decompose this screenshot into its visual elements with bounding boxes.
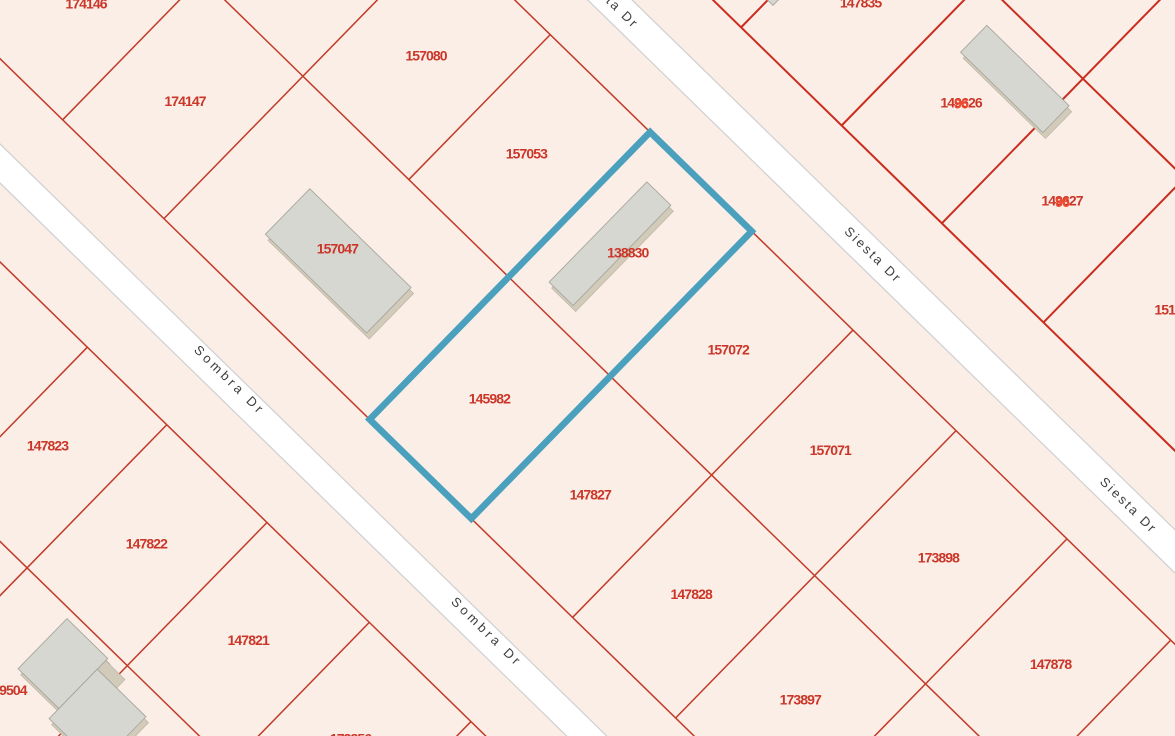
svg-text:96: 96 bbox=[954, 95, 969, 111]
svg-text:157047: 157047 bbox=[317, 241, 359, 257]
svg-text:173898: 173898 bbox=[918, 550, 960, 566]
svg-text:147828: 147828 bbox=[671, 586, 713, 602]
svg-text:157072: 157072 bbox=[708, 342, 750, 358]
svg-text:157071: 157071 bbox=[810, 442, 852, 458]
svg-text:147822: 147822 bbox=[126, 536, 168, 552]
svg-text:147821: 147821 bbox=[228, 632, 270, 648]
svg-text:173897: 173897 bbox=[780, 692, 822, 708]
svg-text:157053: 157053 bbox=[506, 146, 548, 162]
svg-text:174146: 174146 bbox=[65, 0, 107, 12]
svg-text:145982: 145982 bbox=[469, 390, 511, 406]
svg-text:149504: 149504 bbox=[0, 682, 28, 698]
svg-text:157080: 157080 bbox=[405, 48, 447, 64]
svg-text:147835: 147835 bbox=[840, 0, 882, 11]
svg-text:147823: 147823 bbox=[27, 438, 69, 454]
svg-text:138830: 138830 bbox=[607, 244, 649, 260]
svg-text:174147: 174147 bbox=[164, 93, 206, 109]
svg-text:151042: 151042 bbox=[1154, 302, 1175, 318]
svg-text:147827: 147827 bbox=[570, 487, 612, 503]
svg-text:173856: 173856 bbox=[330, 731, 372, 736]
svg-text:147878: 147878 bbox=[1030, 656, 1072, 672]
svg-text:96: 96 bbox=[1055, 194, 1070, 210]
